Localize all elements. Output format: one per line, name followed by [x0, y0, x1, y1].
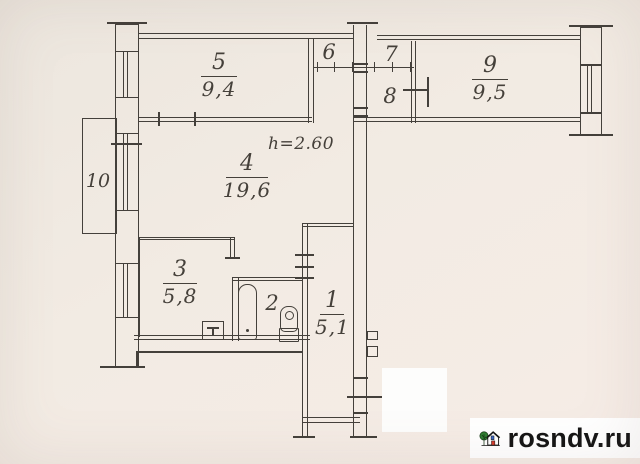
- wall-cap: [569, 134, 613, 136]
- building-outline: [137, 351, 303, 353]
- wall-joint: [353, 63, 368, 65]
- building-outline: [136, 351, 138, 367]
- window: [580, 64, 602, 114]
- stove-icon: [202, 321, 224, 340]
- room-label-4: 4 19,6: [221, 153, 273, 201]
- window: [115, 263, 139, 318]
- room-label-2: 2: [260, 291, 284, 315]
- door-jamb: [367, 331, 378, 340]
- wall-block: [580, 27, 602, 66]
- room-area: 9,4: [196, 78, 242, 100]
- room-number: 5: [196, 52, 242, 74]
- wall-cap: [293, 436, 315, 438]
- room-label-10: 10: [84, 170, 112, 192]
- wall-cap: [347, 22, 378, 24]
- bathtub-icon: [238, 284, 257, 340]
- room-number: 3: [158, 259, 202, 281]
- window: [115, 133, 139, 211]
- ceiling-height-label: h=2.60: [268, 134, 334, 154]
- floor-plan: 10: [0, 0, 640, 464]
- wall-block: [115, 24, 139, 52]
- watermark-strip: rosndv.ru: [470, 418, 640, 458]
- window: [115, 51, 139, 98]
- interior-wall: [138, 237, 140, 337]
- wall-cap: [100, 366, 145, 368]
- interior-wall: [303, 417, 360, 423]
- wall-joint: [353, 71, 368, 73]
- dimension-tick: [352, 62, 353, 72]
- room-label-6: 6: [318, 40, 340, 64]
- room-label-3: 3 5,8: [158, 259, 202, 307]
- room-label-1: 1 5,1: [315, 290, 349, 338]
- white-patch: [382, 368, 447, 432]
- wall-joint: [353, 377, 368, 379]
- room-number: 9: [467, 55, 513, 77]
- interior-wall: [138, 117, 312, 122]
- rosndv-logo-icon: [479, 421, 501, 455]
- room-label-5: 5 9,4: [196, 52, 242, 100]
- door-jamb: [367, 346, 378, 357]
- door-jamb-tick: [403, 89, 429, 91]
- interior-wall: [230, 237, 235, 259]
- interior-wall: [308, 38, 314, 123]
- exterior-wall-top: [138, 33, 353, 39]
- dimension-line: [314, 67, 414, 68]
- interior-wall: [138, 237, 235, 240]
- watermark-text: rosndv.ru: [508, 423, 632, 454]
- room-area: 5,1: [315, 316, 349, 338]
- door-jamb-tick: [225, 257, 240, 259]
- wall-block: [115, 97, 139, 134]
- room-label-8: 8: [379, 84, 401, 108]
- wall-joint: [353, 412, 368, 414]
- room-area: 5,8: [158, 285, 202, 307]
- room-label-7: 7: [380, 42, 402, 66]
- interior-wall: [302, 223, 353, 227]
- door-jamb-tick: [158, 112, 160, 126]
- room-number: 1: [315, 290, 349, 312]
- dimension-tick: [374, 62, 375, 72]
- interior-wall: [232, 277, 302, 281]
- wall-block: [580, 112, 602, 136]
- interior-wall: [411, 41, 416, 123]
- exterior-wall-top: [377, 35, 580, 40]
- interior-wall: [353, 117, 580, 122]
- wall-cap: [350, 436, 377, 438]
- room-label-9: 9 9,5: [467, 55, 513, 103]
- room-area: 9,5: [467, 81, 513, 103]
- wall-joint: [353, 107, 368, 109]
- door-jamb-tick: [427, 77, 429, 107]
- door-jamb-tick: [295, 254, 314, 256]
- central-wall: [353, 25, 367, 437]
- door-jamb-tick: [295, 266, 314, 268]
- wall-block: [115, 210, 139, 264]
- wall-tick: [347, 396, 382, 398]
- door-jamb-tick: [194, 112, 196, 126]
- room-number: 4: [221, 153, 273, 175]
- room-area: 19,6: [221, 179, 273, 201]
